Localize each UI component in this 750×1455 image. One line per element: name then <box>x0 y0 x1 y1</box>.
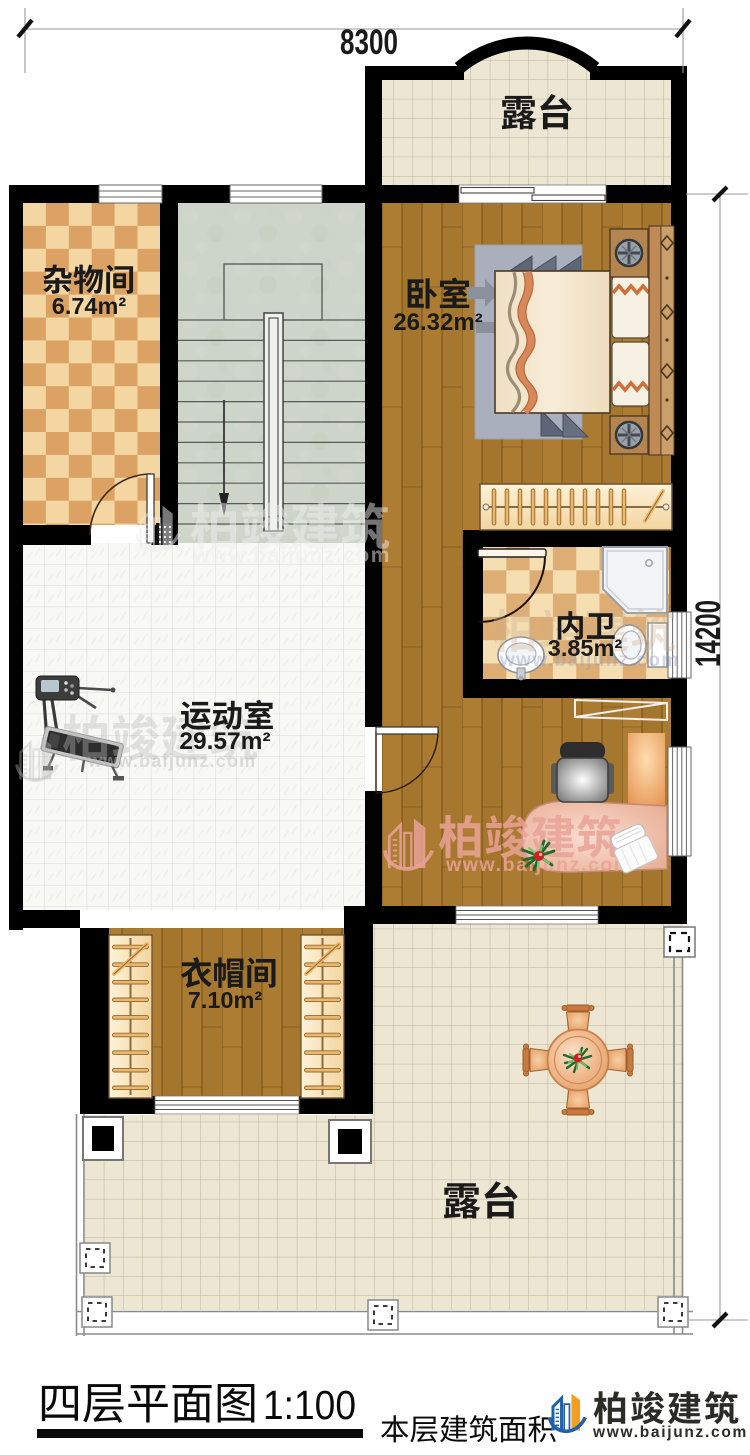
svg-text:3.85m²: 3.85m² <box>548 635 623 661</box>
svg-text:8300: 8300 <box>340 23 398 62</box>
svg-text:1:100: 1:100 <box>263 1382 356 1428</box>
svg-text:29.57m²: 29.57m² <box>179 728 270 755</box>
svg-text:www.baijunz.com: www.baijunz.com <box>592 1424 748 1441</box>
svg-text:www.baijunz.com: www.baijunz.com <box>192 544 391 567</box>
svg-text:7.10m²: 7.10m² <box>188 987 263 1013</box>
svg-text:6.74m²: 6.74m² <box>52 293 127 319</box>
svg-text:26.32m²: 26.32m² <box>393 309 482 336</box>
svg-text:14200: 14200 <box>690 600 728 667</box>
